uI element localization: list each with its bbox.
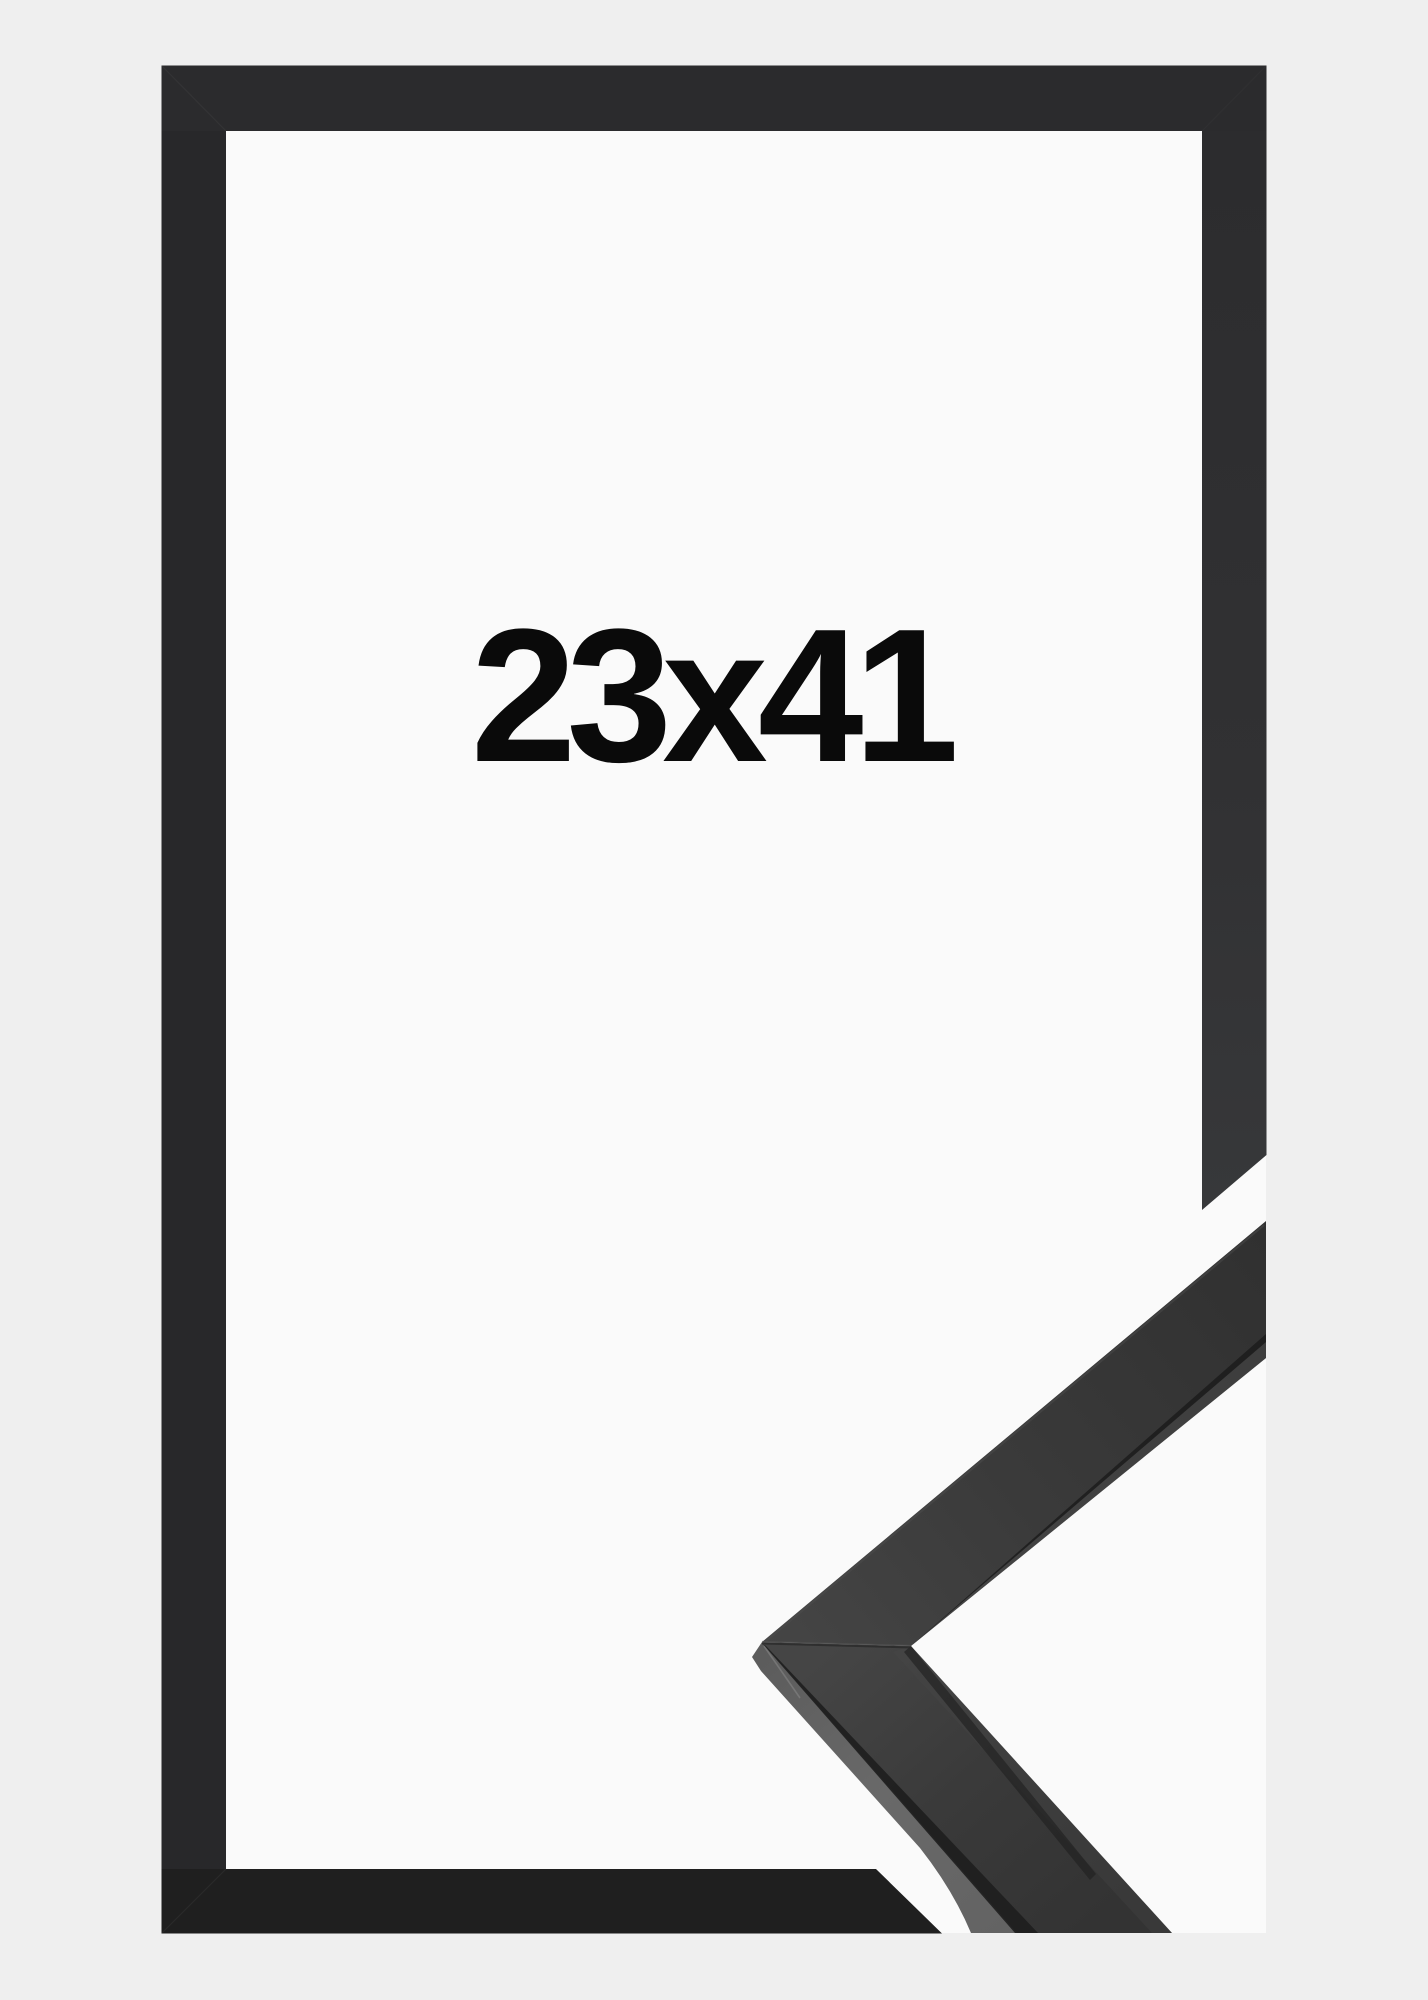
svg-text:23x41: 23x41 <box>471 590 955 802</box>
